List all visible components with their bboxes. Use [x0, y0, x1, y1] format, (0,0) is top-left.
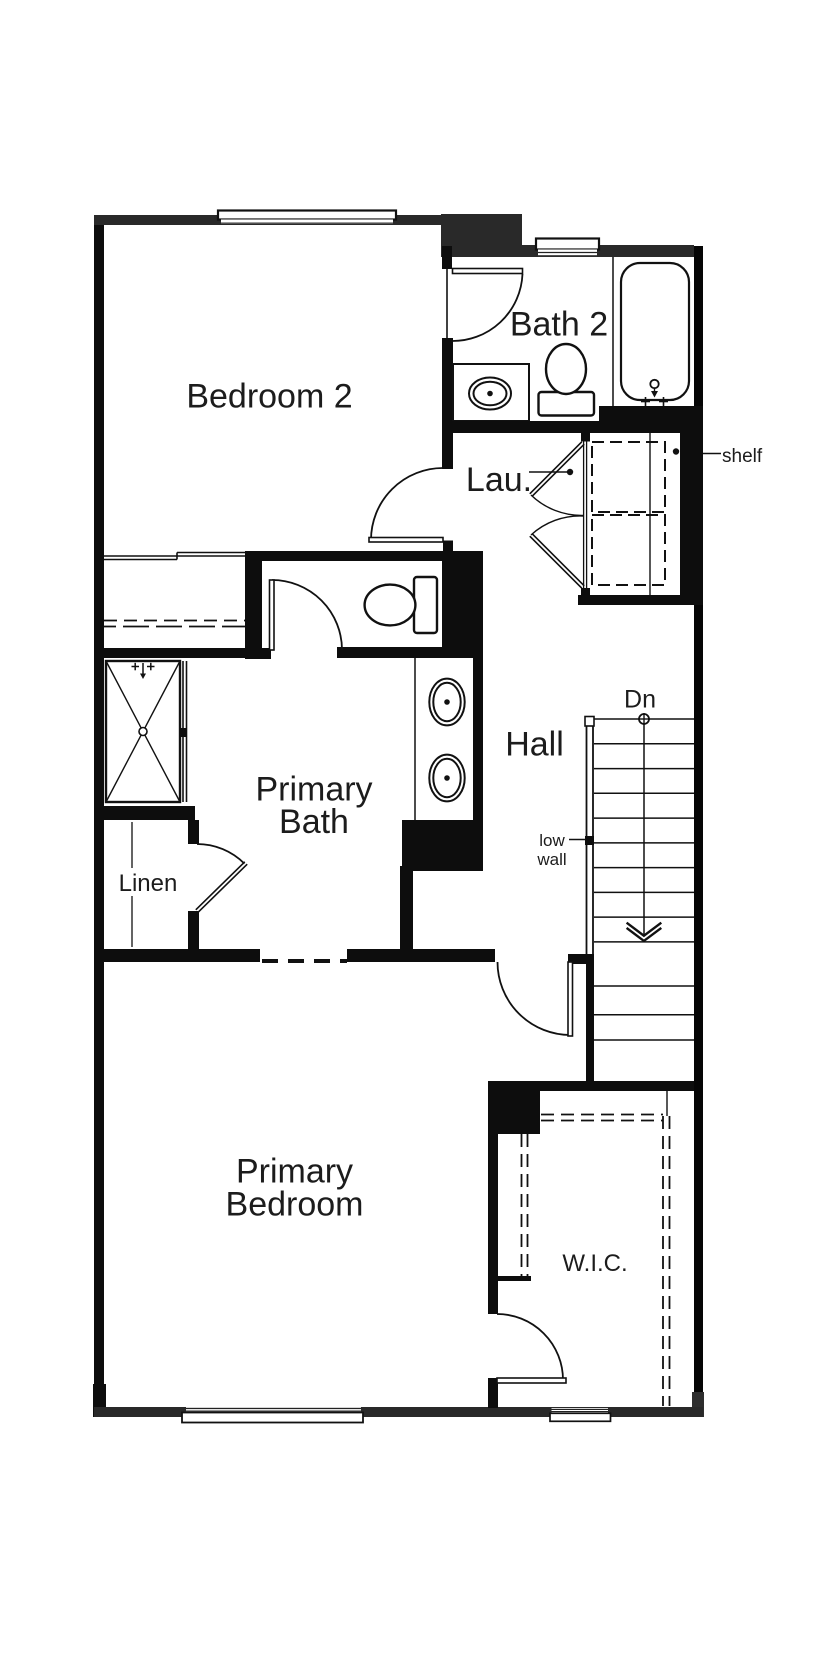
svg-text:W.I.C.: W.I.C. — [562, 1250, 627, 1277]
svg-text:wall: wall — [536, 850, 566, 869]
svg-text:shelf: shelf — [722, 446, 763, 467]
svg-text:Linen: Linen — [119, 870, 178, 897]
svg-text:Hall: Hall — [505, 726, 564, 764]
svg-text:Bedroom 2: Bedroom 2 — [186, 378, 352, 416]
svg-text:low: low — [539, 831, 565, 850]
svg-text:Bath 2: Bath 2 — [510, 306, 608, 344]
svg-text:Lau.: Lau. — [466, 461, 532, 499]
svg-text:Bedroom: Bedroom — [226, 1186, 364, 1224]
svg-text:Dn: Dn — [624, 686, 656, 714]
svg-text:Bath: Bath — [279, 803, 349, 841]
